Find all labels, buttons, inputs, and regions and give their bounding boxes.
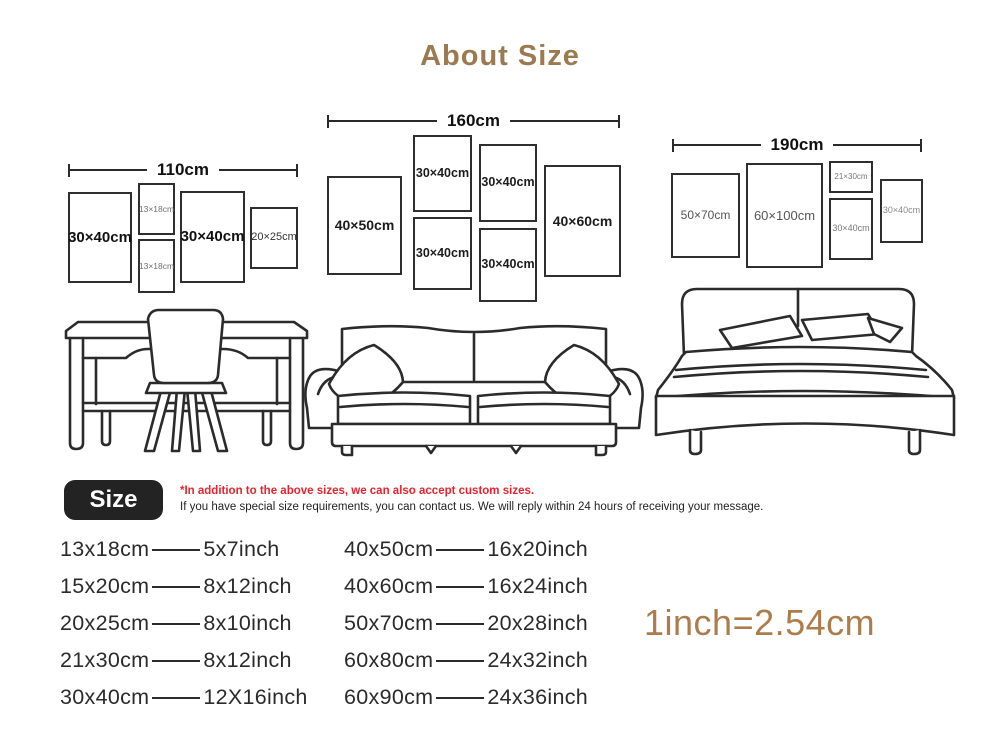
wall-width-arrow-160cm: 160cm — [327, 113, 620, 129]
frame-label: 13×18cm — [139, 205, 174, 214]
inch-value: 24x32inch — [487, 648, 588, 673]
frame-30x40: 30×40cm — [479, 144, 537, 222]
arrow-right-tick — [920, 139, 922, 152]
frame-label: 30×40cm — [481, 176, 534, 189]
frame-label: 20×25cm — [251, 232, 297, 244]
page-title: About Size — [0, 40, 1000, 73]
frame-20x25: 20×25cm — [250, 207, 298, 269]
bed-drawing — [640, 278, 970, 464]
dash-connector — [152, 549, 200, 551]
frame-label: 30×40cm — [181, 229, 245, 245]
frame-label: 30×40cm — [481, 258, 534, 271]
inch-value: 16x24inch — [487, 574, 588, 599]
frame-label: 30×40cm — [68, 230, 132, 246]
desk-chair-drawing — [58, 303, 313, 455]
conversion-row: 20x25cm 8x10inch — [60, 605, 308, 642]
wall-width-arrow-190cm: 190cm — [672, 137, 922, 153]
frame-label: 21×30cm — [834, 173, 867, 181]
frame-30x40: 30×40cm — [880, 179, 923, 243]
arrow-right-tick — [296, 164, 298, 177]
conversion-row: 40x60cm 16x24inch — [344, 568, 588, 605]
frame-30x40: 30×40cm — [413, 217, 472, 290]
conversion-row: 50x70cm 20x28inch — [344, 605, 588, 642]
cm-value: 60x90cm — [344, 685, 433, 710]
arrow-line — [833, 144, 920, 146]
sofa-drawing — [298, 312, 650, 458]
size-badge: Size — [64, 480, 163, 520]
frame-30x40: 30×40cm — [180, 191, 245, 283]
wall-width-label: 190cm — [761, 135, 834, 155]
inch-value: 8x12inch — [203, 574, 291, 599]
frame-30x40: 30×40cm — [479, 228, 537, 302]
arrow-line — [70, 169, 147, 171]
dash-connector — [436, 623, 484, 625]
dash-connector — [152, 697, 200, 699]
custom-size-note-highlight: *In addition to the above sizes, we can … — [180, 485, 534, 497]
conversion-column-1: 13x18cm 5x7inch 15x20cm 8x12inch 20x25cm… — [60, 531, 308, 716]
custom-size-note: If you have special size requirements, y… — [180, 501, 763, 513]
frame-label: 40×50cm — [335, 218, 395, 233]
frame-40x60: 40×60cm — [544, 165, 621, 277]
wall-width-label: 110cm — [147, 160, 219, 180]
inch-value: 12X16inch — [203, 685, 307, 710]
dash-connector — [436, 697, 484, 699]
dash-connector — [436, 549, 484, 551]
arrow-line — [219, 169, 296, 171]
cm-value: 15x20cm — [60, 574, 149, 599]
wall-width-arrow-110cm: 110cm — [68, 162, 298, 178]
arrow-line — [674, 144, 761, 146]
cm-value: 60x80cm — [344, 648, 433, 673]
inch-value: 16x20inch — [487, 537, 588, 562]
inch-value: 5x7inch — [203, 537, 279, 562]
frame-30x40: 30×40cm — [68, 192, 132, 283]
frame-label: 30×40cm — [883, 206, 920, 215]
inch-value: 8x10inch — [203, 611, 291, 636]
conversion-column-2: 40x50cm 16x20inch 40x60cm 16x24inch 50x7… — [344, 531, 588, 716]
conversion-row: 60x90cm 24x36inch — [344, 679, 588, 716]
frame-60x100: 60×100cm — [746, 163, 823, 268]
dash-connector — [436, 660, 484, 662]
frame-21x30: 21×30cm — [829, 161, 873, 193]
inch-value: 8x12inch — [203, 648, 291, 673]
frame-label: 40×60cm — [553, 214, 613, 229]
frame-13x18: 13×18cm — [138, 239, 175, 293]
cm-value: 13x18cm — [60, 537, 149, 562]
inch-cm-equivalence: 1inch=2.54cm — [644, 602, 875, 644]
cm-value: 40x60cm — [344, 574, 433, 599]
frame-label: 30×40cm — [416, 167, 469, 180]
cm-value: 30x40cm — [60, 685, 149, 710]
arrow-line — [329, 120, 437, 122]
conversion-row: 15x20cm 8x12inch — [60, 568, 308, 605]
frame-label: 30×40cm — [416, 247, 469, 260]
about-size-infographic: About Size 110cm 30×40cm 13×18cm 13×18cm… — [0, 0, 1000, 738]
inch-value: 24x36inch — [487, 685, 588, 710]
frame-13x18: 13×18cm — [138, 183, 175, 235]
frame-30x40: 30×40cm — [829, 198, 873, 260]
frame-label: 13×18cm — [139, 262, 174, 271]
dash-connector — [152, 586, 200, 588]
frame-label: 60×100cm — [754, 209, 815, 223]
frame-label: 50×70cm — [681, 209, 731, 222]
frame-30x40: 30×40cm — [413, 135, 472, 212]
cm-value: 21x30cm — [60, 648, 149, 673]
conversion-row: 21x30cm 8x12inch — [60, 642, 308, 679]
wall-width-label: 160cm — [437, 111, 510, 131]
inch-value: 20x28inch — [487, 611, 588, 636]
conversion-row: 13x18cm 5x7inch — [60, 531, 308, 568]
conversion-row: 40x50cm 16x20inch — [344, 531, 588, 568]
frame-40x50: 40×50cm — [327, 176, 402, 275]
arrow-right-tick — [618, 115, 620, 128]
conversion-row: 30x40cm 12X16inch — [60, 679, 308, 716]
cm-value: 20x25cm — [60, 611, 149, 636]
frame-50x70: 50×70cm — [671, 173, 740, 258]
conversion-row: 60x80cm 24x32inch — [344, 642, 588, 679]
cm-value: 50x70cm — [344, 611, 433, 636]
dash-connector — [152, 660, 200, 662]
frame-label: 30×40cm — [832, 224, 869, 233]
cm-value: 40x50cm — [344, 537, 433, 562]
size-badge-label: Size — [89, 486, 137, 514]
dash-connector — [436, 586, 484, 588]
arrow-line — [510, 120, 618, 122]
dash-connector — [152, 623, 200, 625]
